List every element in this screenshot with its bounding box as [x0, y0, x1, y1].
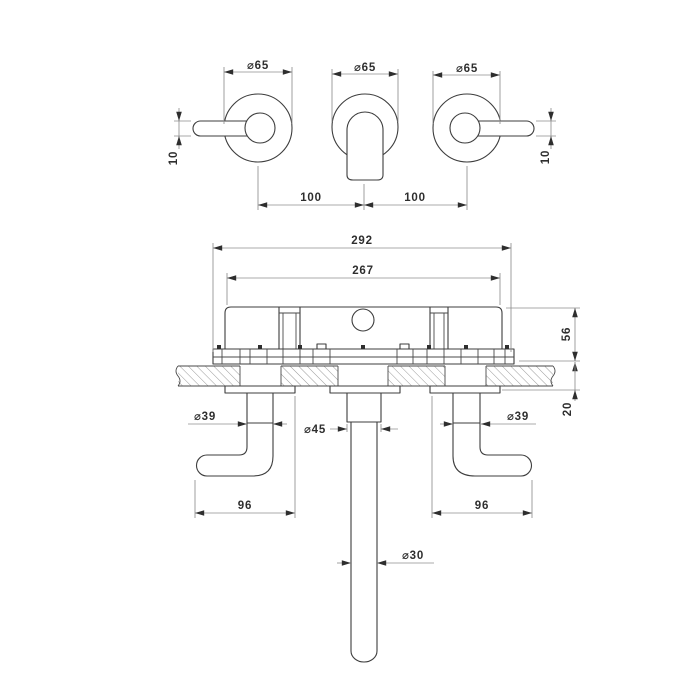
left-knurled-trim	[247, 393, 273, 423]
dim-label-96-left: 96	[238, 500, 252, 512]
spout-nose	[347, 112, 383, 180]
dim-label-dia45: ⌀45	[304, 424, 326, 436]
bracket-right	[430, 307, 448, 349]
spout-tube	[351, 422, 377, 662]
dim-label-dia39-left: ⌀39	[194, 411, 216, 423]
right-handle-front	[433, 94, 534, 162]
dim-label-267: 267	[352, 265, 374, 277]
spout-knurled-trim	[347, 393, 381, 422]
dim-label-100-right: 100	[404, 192, 426, 204]
dim-label-dia65-right: ⌀65	[456, 63, 478, 75]
left-handle-profile	[197, 423, 273, 476]
dim-label-dia39-right: ⌀39	[507, 411, 529, 423]
dim-56: 56	[506, 308, 580, 361]
right-knurled-trim	[453, 393, 480, 423]
right-escutcheon-plate	[430, 386, 500, 393]
wall-section	[176, 366, 555, 386]
spout-escutcheon-plate	[330, 386, 400, 393]
rail-screws	[217, 345, 509, 349]
dim-dia39-left: ⌀39	[188, 411, 287, 424]
right-handle-profile	[453, 423, 532, 476]
right-hub-circle	[450, 113, 480, 143]
left-escutcheon-plate	[225, 386, 295, 393]
body-port-circle	[352, 309, 374, 331]
left-handle-front	[193, 94, 292, 162]
dim-label-56: 56	[561, 327, 573, 341]
bracket-left	[279, 307, 300, 349]
dim-267: 267	[227, 265, 500, 305]
dim-10-left: 10	[168, 108, 191, 165]
dim-label-10-right: 10	[540, 150, 552, 164]
spout-front	[332, 94, 398, 180]
faucet-technical-drawing: ⌀65 ⌀65 ⌀65 10 10	[0, 0, 700, 700]
left-hub-circle	[245, 113, 275, 143]
front-view: ⌀65 ⌀65 ⌀65 10 10	[168, 60, 556, 210]
dim-label-dia30: ⌀30	[402, 550, 424, 562]
dim-label-10-left: 10	[168, 151, 180, 165]
dim-10-right: 10	[536, 108, 556, 164]
dim-label-20: 20	[562, 402, 574, 416]
drawing-canvas: ⌀65 ⌀65 ⌀65 10 10	[0, 0, 700, 700]
dim-label-dia65-center: ⌀65	[354, 62, 376, 74]
section-view: 292 267 56 20 ⌀39	[176, 235, 580, 662]
dim-label-292: 292	[351, 235, 373, 247]
dim-label-100-left: 100	[300, 192, 322, 204]
dim-label-dia65-left: ⌀65	[247, 60, 269, 72]
dim-dia39-right: ⌀39	[440, 411, 536, 424]
dim-label-96-right: 96	[475, 500, 489, 512]
